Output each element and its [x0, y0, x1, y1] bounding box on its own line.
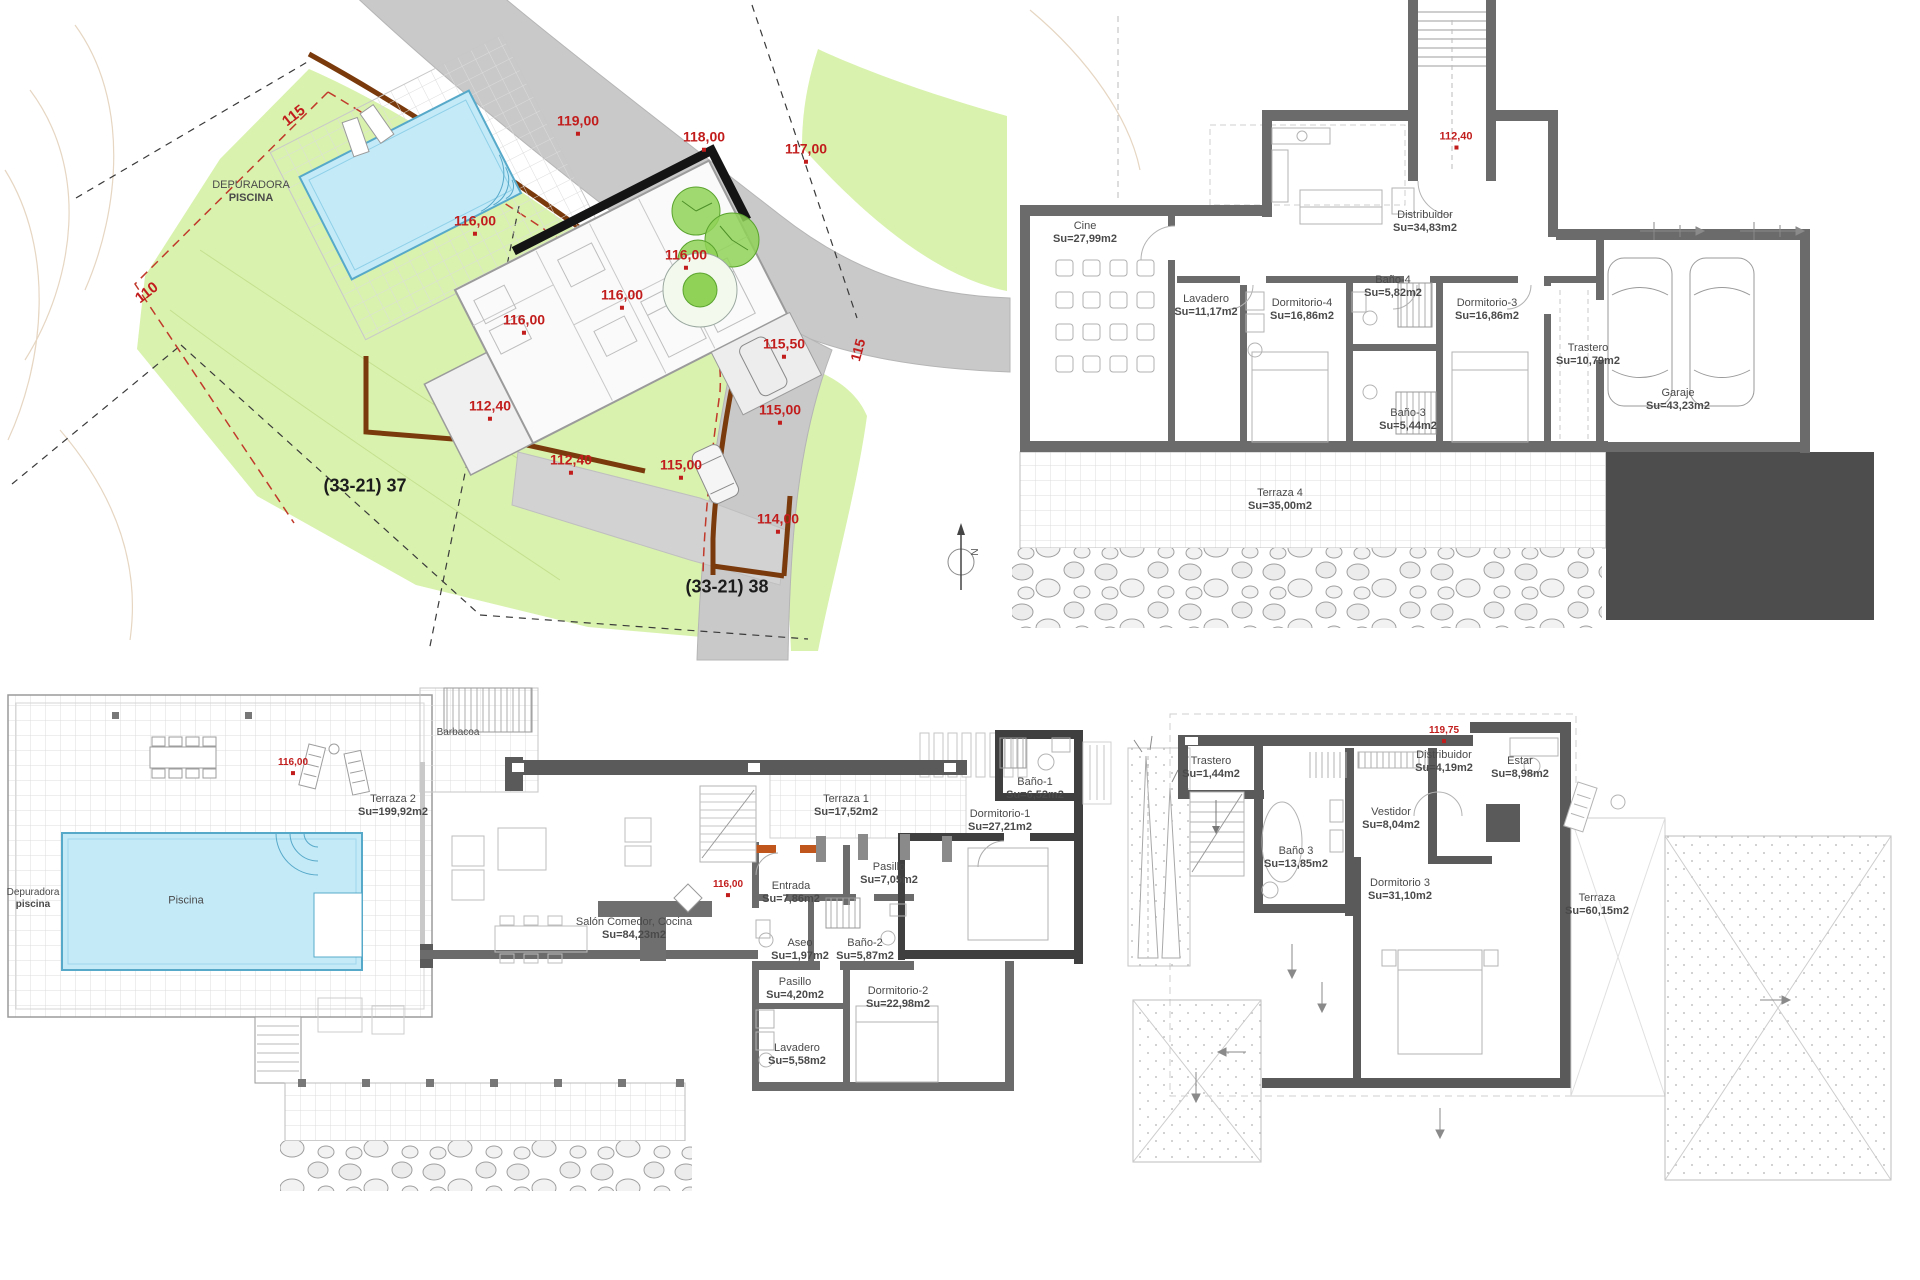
dark-slab — [1606, 452, 1874, 620]
upper-terrace — [1564, 782, 1665, 1096]
stair-treads — [1418, 12, 1486, 215]
entry-doors — [756, 841, 1004, 875]
upper-floor-plan-drawing — [1128, 714, 1891, 1180]
living-furniture — [452, 818, 651, 963]
site-plan-drawing — [5, 0, 1140, 660]
plans-drawing — [0, 0, 1920, 1280]
cinema-chairs — [1056, 260, 1154, 372]
roof-squares — [1133, 836, 1891, 1180]
right-porch — [1083, 742, 1111, 804]
garage-cars — [1608, 258, 1754, 406]
upper-fixtures — [1262, 738, 1558, 1054]
main-floor-plan-drawing — [8, 688, 1111, 1191]
terrace-stairs — [255, 1017, 301, 1083]
basement-door-gaps — [1166, 226, 1553, 314]
architectural-sheet: 115119,00118,00117,00DEPURADORAPISCINA11… — [0, 0, 1920, 1280]
north-arrow — [948, 523, 974, 590]
barbacoa-structure — [444, 688, 532, 732]
basement-plan-drawing — [1012, 0, 1874, 628]
main-stairs — [700, 786, 756, 862]
